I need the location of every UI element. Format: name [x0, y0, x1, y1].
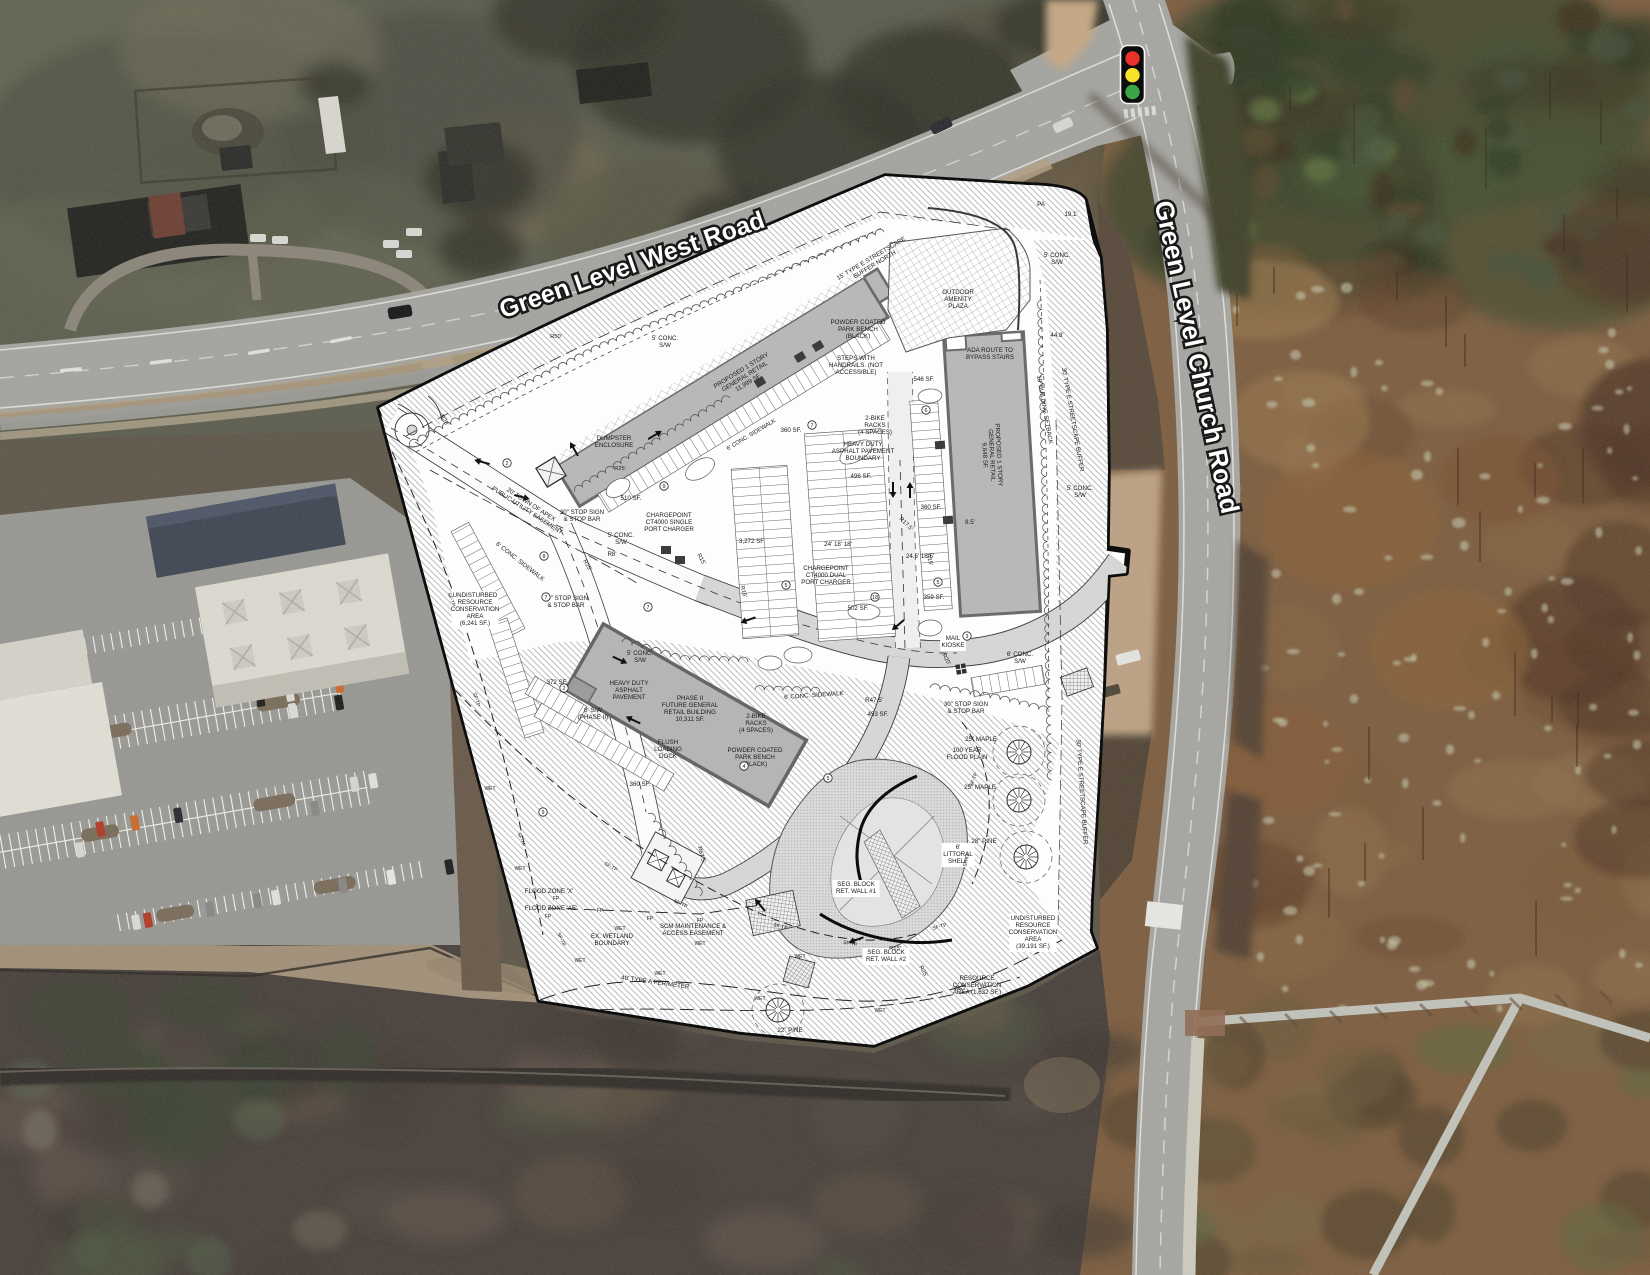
svg-text:R25': R25' [614, 466, 626, 472]
svg-text:FLOOD ZONE 'X': FLOOD ZONE 'X' [525, 888, 573, 895]
svg-text:18: 18 [872, 595, 878, 601]
svg-text:FP: FP [647, 916, 654, 922]
svg-text:CHARGEPOINTCT4000 SINGLEPORT C: CHARGEPOINTCT4000 SINGLEPORT CHARGER [644, 512, 694, 533]
svg-text:WET: WET [954, 986, 965, 992]
svg-text:CHARGEPOINTCT4000 DUALPORT CHA: CHARGEPOINTCT4000 DUALPORT CHARGER [801, 565, 851, 586]
svg-text:44.8': 44.8' [1050, 332, 1063, 339]
svg-text:HEAVY DUTYASPHALTPAVEMENT: HEAVY DUTYASPHALTPAVEMENT [610, 680, 649, 701]
svg-text:5: 5 [937, 580, 940, 586]
svg-text:WET: WET [514, 866, 525, 872]
svg-text:WET: WET [484, 786, 495, 792]
svg-text:7: 7 [647, 605, 650, 611]
svg-text:25" MAPLE: 25" MAPLE [965, 736, 997, 743]
svg-text:3,272 SF.: 3,272 SF. [739, 538, 765, 545]
svg-text:R15': R15' [889, 946, 901, 952]
svg-text:WET: WET [874, 1008, 885, 1014]
svg-text:5: 5 [827, 776, 830, 782]
svg-text:PA: PA [1037, 201, 1046, 208]
svg-text:453 SF.: 453 SF. [868, 711, 889, 718]
svg-text:28" PINE: 28" PINE [971, 838, 996, 845]
svg-text:3: 3 [966, 634, 969, 640]
svg-text:100 YEARFLOOD PLAIN: 100 YEARFLOOD PLAIN [947, 747, 988, 761]
svg-text:9: 9 [542, 810, 545, 816]
svg-text:7: 7 [811, 423, 814, 429]
svg-text:R8': R8' [607, 551, 616, 558]
svg-text:360 SF.: 360 SF. [921, 504, 942, 511]
svg-text:FP: FP [697, 918, 704, 924]
svg-text:7: 7 [545, 595, 548, 601]
svg-text:5: 5 [785, 583, 788, 589]
svg-text:WET: WET [614, 926, 625, 932]
svg-text:360 SF.: 360 SF. [630, 781, 651, 788]
svg-text:R50': R50' [550, 334, 562, 340]
svg-text:WET: WET [574, 958, 585, 964]
svg-text:546 SF.: 546 SF. [914, 376, 935, 383]
svg-text:R47.5': R47.5' [865, 697, 883, 704]
svg-text:WET: WET [694, 941, 705, 947]
svg-text:22" PINE: 22" PINE [777, 1027, 802, 1034]
svg-text:2: 2 [563, 686, 566, 692]
svg-text:24' 18' 18': 24' 18' 18' [824, 541, 852, 548]
svg-text:9: 9 [663, 484, 666, 490]
svg-text:30" STOP SIGN& STOP BAR: 30" STOP SIGN& STOP BAR [560, 509, 604, 523]
svg-text:EX. WETLANDBOUNDARY: EX. WETLANDBOUNDARY [591, 933, 633, 947]
svg-text:359 SF.: 359 SF. [924, 594, 945, 601]
svg-text:ADA ROUTE TOBYPASS STAIRS: ADA ROUTE TOBYPASS STAIRS [966, 347, 1014, 361]
svg-text:DUMPSTERENCLOSURE: DUMPSTERENCLOSURE [595, 435, 634, 449]
svg-text:FLOOD ZONE 'AE': FLOOD ZONE 'AE' [525, 905, 578, 912]
svg-text:510 SF.: 510 SF. [621, 495, 642, 502]
svg-text:502 SF.: 502 SF. [848, 605, 869, 612]
svg-text:19.1': 19.1' [1064, 211, 1077, 218]
svg-text:FP: FP [553, 896, 560, 902]
svg-text:6: 6 [925, 408, 928, 414]
svg-text:FP: FP [597, 908, 604, 914]
svg-text:WET: WET [794, 954, 805, 960]
svg-text:360 SF.: 360 SF. [781, 427, 802, 434]
svg-text:8.5': 8.5' [965, 519, 975, 526]
svg-text:FP: FP [545, 914, 552, 920]
svg-text:30" STOP SIGN& STOP BAR: 30" STOP SIGN& STOP BAR [944, 701, 988, 715]
svg-text:496 SF.: 496 SF. [851, 473, 872, 480]
svg-text:WET: WET [754, 996, 765, 1002]
svg-text:WET: WET [654, 971, 665, 977]
svg-text:2: 2 [506, 461, 509, 467]
svg-text:8: 8 [543, 554, 546, 560]
svg-text:SEG. BLOCKRET. WALL #1: SEG. BLOCKRET. WALL #1 [836, 881, 877, 895]
svg-text:SCM MAINTENANCE &ACCESS EASEME: SCM MAINTENANCE &ACCESS EASEMENT [660, 923, 727, 937]
svg-text:4: 4 [743, 764, 746, 770]
